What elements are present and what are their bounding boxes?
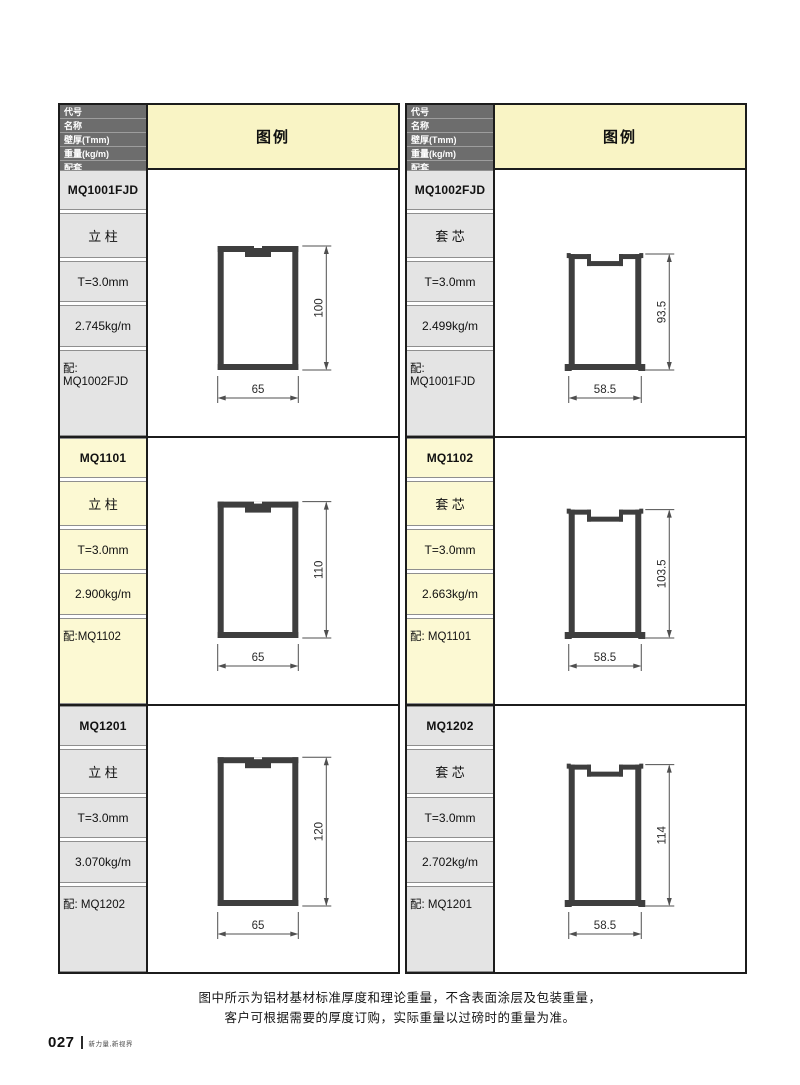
profile-diagram-cell: 10065: [148, 170, 398, 436]
header-weight-label: 重量(kg/m): [407, 147, 493, 161]
profile-code: MQ1001FJD: [60, 170, 146, 210]
svg-text:58.5: 58.5: [594, 384, 616, 396]
profile-weight: 2.499kg/m: [407, 305, 493, 347]
section-label-column: MQ1002FJD 套 芯 T=3.0mm 2.499kg/m 配: MQ100…: [407, 170, 495, 436]
section-label-column: MQ1001FJD 立 柱 T=3.0mm 2.745kg/m 配: MQ100…: [60, 170, 148, 436]
table-header-right: 代号 名称 壁厚(Tmm) 重量(kg/m) 配套 图例: [407, 105, 745, 170]
header-code-label: 代号: [407, 105, 493, 119]
catalog-table-left: 代号 名称 壁厚(Tmm) 重量(kg/m) 配套 图例 MQ1001FJD 立…: [58, 103, 400, 974]
profile-weight: 2.663kg/m: [407, 573, 493, 615]
profile-section-mq1201: MQ1201 立 柱 T=3.0mm 3.070kg/m 配: MQ1202 1…: [60, 704, 398, 972]
section-label-column: MQ1201 立 柱 T=3.0mm 3.070kg/m 配: MQ1202: [60, 706, 148, 972]
svg-text:65: 65: [252, 384, 265, 396]
legend-header: 图例: [495, 105, 745, 168]
profile-cross-section-diagram: 93.558.5: [495, 170, 745, 436]
catalog-table-right: 代号 名称 壁厚(Tmm) 重量(kg/m) 配套 图例 MQ1002FJD 套…: [405, 103, 747, 974]
section-label-column: MQ1202 套 芯 T=3.0mm 2.702kg/m 配: MQ1201: [407, 706, 495, 972]
svg-text:65: 65: [252, 652, 265, 664]
profile-section-mq1202: MQ1202 套 芯 T=3.0mm 2.702kg/m 配: MQ1201 1…: [407, 704, 745, 972]
profile-weight: 2.702kg/m: [407, 841, 493, 883]
profile-section-mq1102: MQ1102 套 芯 T=3.0mm 2.663kg/m 配: MQ1101 1…: [407, 436, 745, 704]
profile-code: MQ1102: [407, 438, 493, 478]
profile-name: 立 柱: [60, 481, 146, 526]
profile-cross-section-diagram: 12065: [148, 706, 398, 972]
profile-thickness: T=3.0mm: [407, 261, 493, 302]
profile-cross-section-diagram: 11065: [148, 438, 398, 704]
profile-match: 配:MQ1102: [60, 618, 146, 704]
profile-code: MQ1202: [407, 706, 493, 746]
profile-section-mq1101: MQ1101 立 柱 T=3.0mm 2.900kg/m 配:MQ1102 11…: [60, 436, 398, 704]
profile-match: 配: MQ1202: [60, 886, 146, 972]
svg-text:58.5: 58.5: [594, 652, 616, 664]
profile-match: 配: MQ1201: [407, 886, 493, 972]
header-thickness-label: 壁厚(Tmm): [60, 133, 146, 147]
profile-diagram-cell: 11065: [148, 438, 398, 704]
profile-section-mq1001fjd: MQ1001FJD 立 柱 T=3.0mm 2.745kg/m 配: MQ100…: [60, 170, 398, 436]
profile-weight: 3.070kg/m: [60, 841, 146, 883]
profile-cross-section-diagram: 103.558.5: [495, 438, 745, 704]
catalog-tables: 代号 名称 壁厚(Tmm) 重量(kg/m) 配套 图例 MQ1001FJD 立…: [58, 103, 747, 974]
profile-thickness: T=3.0mm: [60, 797, 146, 838]
profile-thickness: T=3.0mm: [60, 529, 146, 570]
profile-cross-section-diagram: 11458.5: [495, 706, 745, 972]
profile-diagram-cell: 12065: [148, 706, 398, 972]
profile-thickness: T=3.0mm: [407, 529, 493, 570]
profile-match: 配: MQ1101: [407, 618, 493, 704]
footer-divider-bar: [81, 1036, 83, 1049]
profile-code: MQ1002FJD: [407, 170, 493, 210]
footer-note: 图中所示为铝材基材标准厚度和理论重量，不含表面涂层及包装重量， 客户可根据需要的…: [0, 988, 800, 1028]
section-label-column: MQ1102 套 芯 T=3.0mm 2.663kg/m 配: MQ1101: [407, 438, 495, 704]
header-thickness-label: 壁厚(Tmm): [407, 133, 493, 147]
table-header-left: 代号 名称 壁厚(Tmm) 重量(kg/m) 配套 图例: [60, 105, 398, 170]
profile-cross-section-diagram: 10065: [148, 170, 398, 436]
svg-text:65: 65: [252, 920, 265, 932]
profile-thickness: T=3.0mm: [407, 797, 493, 838]
svg-text:93.5: 93.5: [656, 301, 668, 323]
brand-tagline: 新力量,新视界: [89, 1038, 133, 1048]
svg-text:58.5: 58.5: [594, 920, 616, 932]
svg-text:114: 114: [656, 826, 668, 845]
profile-name: 套 芯: [407, 749, 493, 794]
profile-code: MQ1201: [60, 706, 146, 746]
header-label-column: 代号 名称 壁厚(Tmm) 重量(kg/m) 配套: [60, 105, 148, 168]
header-name-label: 名称: [407, 119, 493, 133]
footer-note-line2: 客户可根据需要的厚度订购，实际重量以过磅时的重量为准。: [0, 1008, 800, 1028]
svg-text:103.5: 103.5: [656, 559, 668, 588]
profile-name: 立 柱: [60, 213, 146, 258]
profile-name: 套 芯: [407, 213, 493, 258]
page-footer: 027 新力量,新视界: [48, 1034, 133, 1051]
svg-text:110: 110: [313, 561, 325, 579]
page-number: 027: [48, 1034, 75, 1051]
profile-name: 立 柱: [60, 749, 146, 794]
header-label-column: 代号 名称 壁厚(Tmm) 重量(kg/m) 配套: [407, 105, 495, 168]
profile-diagram-cell: 11458.5: [495, 706, 745, 972]
profile-diagram-cell: 103.558.5: [495, 438, 745, 704]
profile-weight: 2.745kg/m: [60, 305, 146, 347]
header-code-label: 代号: [60, 105, 146, 119]
profile-match: 配: MQ1002FJD: [60, 350, 146, 436]
profile-thickness: T=3.0mm: [60, 261, 146, 302]
footer-note-line1: 图中所示为铝材基材标准厚度和理论重量，不含表面涂层及包装重量，: [0, 988, 800, 1008]
profile-weight: 2.900kg/m: [60, 573, 146, 615]
profile-diagram-cell: 93.558.5: [495, 170, 745, 436]
profile-match: 配: MQ1001FJD: [407, 350, 493, 436]
profile-code: MQ1101: [60, 438, 146, 478]
header-weight-label: 重量(kg/m): [60, 147, 146, 161]
svg-text:100: 100: [313, 298, 325, 317]
header-name-label: 名称: [60, 119, 146, 133]
profile-section-mq1002fjd: MQ1002FJD 套 芯 T=3.0mm 2.499kg/m 配: MQ100…: [407, 170, 745, 436]
legend-header: 图例: [148, 105, 398, 168]
section-label-column: MQ1101 立 柱 T=3.0mm 2.900kg/m 配:MQ1102: [60, 438, 148, 704]
svg-text:120: 120: [313, 822, 325, 841]
profile-name: 套 芯: [407, 481, 493, 526]
